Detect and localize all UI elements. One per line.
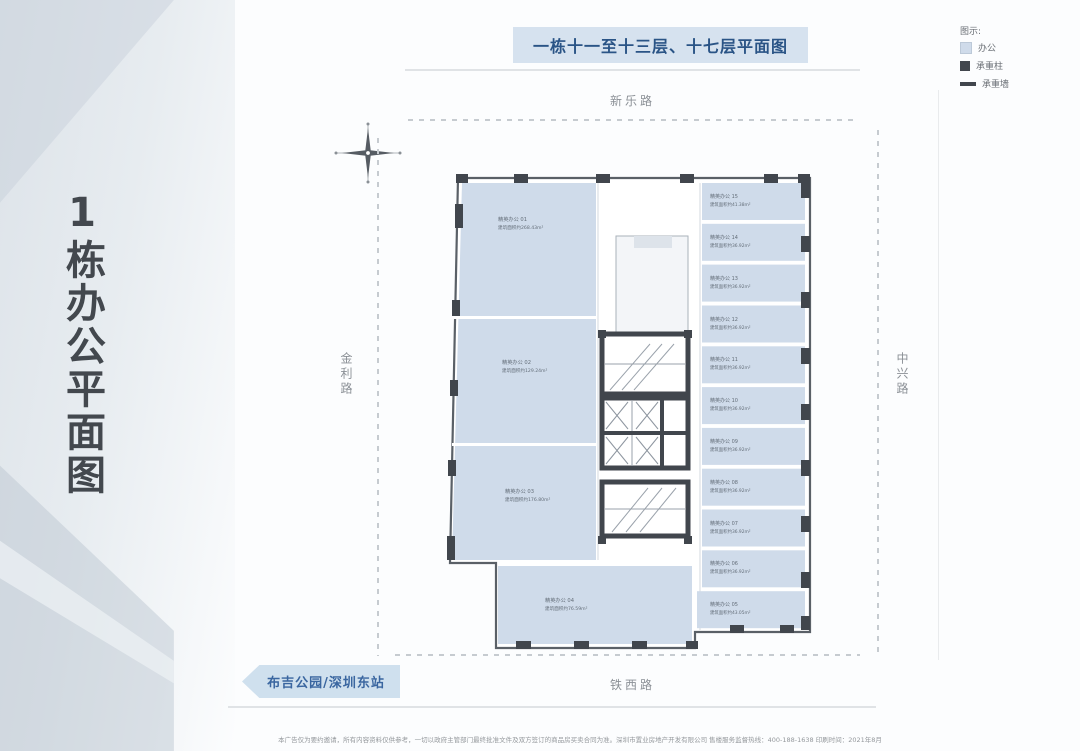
road-label-top: 新乐路 [405, 92, 860, 109]
road-top-edge-line [405, 69, 860, 71]
svg-text:建筑面积约43.05m²: 建筑面积约43.05m² [710, 609, 751, 616]
svg-text:建筑面积约268.43m²: 建筑面积约268.43m² [498, 224, 544, 231]
road-label-right: 中兴路 [894, 352, 911, 397]
svg-text:精英办公 06: 精英办公 06 [710, 560, 738, 567]
stair-core-upper [602, 334, 688, 394]
svg-text:精英办公 15: 精英办公 15 [710, 193, 738, 200]
svg-text:建筑面积约36.92m²: 建筑面积约36.92m² [710, 364, 751, 371]
road-label-bottom: 铁西路 [405, 676, 860, 693]
svg-text:建筑面积约36.92m²: 建筑面积约36.92m² [710, 487, 751, 494]
svg-text:建筑面积约41.38m²: 建筑面积约41.38m² [710, 201, 751, 208]
legend-item-wall: 承重墙 [960, 77, 1009, 90]
svg-text:精英办公 13: 精英办公 13 [710, 275, 738, 282]
svg-text:精英办公 12: 精英办公 12 [710, 316, 738, 323]
stair-core-lower [602, 482, 688, 536]
svg-text:精英办公 04: 精英办公 04 [545, 596, 575, 604]
svg-text:精英办公 14: 精英办公 14 [710, 234, 738, 241]
legend-item-column: 承重柱 [960, 59, 1009, 72]
svg-text:精英办公 02: 精英办公 02 [502, 358, 531, 366]
legend-label: 承重墙 [982, 77, 1009, 90]
wall-swatch-icon [960, 82, 976, 86]
svg-text:建筑面积约36.92m²: 建筑面积约36.92m² [710, 568, 751, 575]
page-title-vertical: 1栋办公平面图 [58, 190, 106, 497]
column-swatch-icon [960, 61, 970, 71]
svg-text:建筑面积约36.92m²: 建筑面积约36.92m² [710, 405, 751, 412]
building-floorplan: 精英办公 01 建筑面积约268.43m² 精英办公 02 建筑面积约129.2… [430, 160, 830, 660]
legend: 图示: 办公 承重柱 承重墙 [960, 24, 1009, 95]
svg-text:精英办公 01: 精英办公 01 [498, 215, 527, 223]
plan-title-badge: 一栋十一至十三层、十七层平面图 [513, 27, 808, 63]
compass-rose-icon [330, 118, 406, 188]
svg-text:建筑面积约176.80m²: 建筑面积约176.80m² [505, 496, 551, 503]
landmark-label: 布吉公园/深圳东站 [257, 672, 385, 691]
svg-text:精英办公 10: 精英办公 10 [710, 397, 738, 404]
road-label-left: 金利路 [338, 352, 355, 397]
side-gradient-band [0, 0, 235, 751]
svg-text:精英办公 03: 精英办公 03 [505, 487, 534, 495]
floorplan-poster: 1栋办公平面图 一栋十一至十三层、十七层平面图 图示: 办公 承重柱 承重墙 新… [0, 0, 1080, 751]
road-bottom-edge-line [228, 706, 876, 708]
svg-text:精英办公 08: 精英办公 08 [710, 479, 738, 486]
legend-item-office: 办公 [960, 41, 1009, 54]
legend-title: 图示: [960, 24, 1009, 37]
svg-text:建筑面积约36.92m²: 建筑面积约36.92m² [710, 283, 751, 290]
svg-text:精英办公 05: 精英办公 05 [710, 601, 738, 608]
road-left-dashed-line [377, 138, 379, 656]
office-swatch-icon [960, 42, 972, 54]
core-void [616, 236, 688, 332]
svg-text:精英办公 07: 精英办公 07 [710, 520, 738, 527]
svg-text:建筑面积约36.92m²: 建筑面积约36.92m² [710, 242, 751, 249]
legend-label: 办公 [978, 41, 996, 54]
svg-text:精英办公 11: 精英办公 11 [710, 356, 738, 363]
elevator-core [602, 398, 688, 468]
office-area-bottom [498, 566, 692, 644]
footer-disclaimer: 本广告仅为要约邀请，所有内容资料仅供参考，一切以政府主管部门最终批准文件及双方签… [250, 734, 910, 744]
svg-text:精英办公 09: 精英办公 09 [710, 438, 738, 445]
road-top-dashed-line [408, 119, 858, 121]
svg-text:建筑面积约129.24m²: 建筑面积约129.24m² [502, 367, 548, 374]
svg-text:建筑面积约76.59m²: 建筑面积约76.59m² [545, 605, 588, 612]
road-right-dashed-line [877, 130, 879, 656]
landmark-banner: 布吉公园/深圳东站 [242, 665, 400, 698]
svg-text:建筑面积约36.92m²: 建筑面积约36.92m² [710, 446, 751, 453]
road-right-edge-line [938, 90, 939, 660]
svg-text:建筑面积约36.92m²: 建筑面积约36.92m² [710, 324, 751, 331]
svg-text:建筑面积约36.92m²: 建筑面积约36.92m² [710, 528, 751, 535]
legend-label: 承重柱 [976, 59, 1003, 72]
